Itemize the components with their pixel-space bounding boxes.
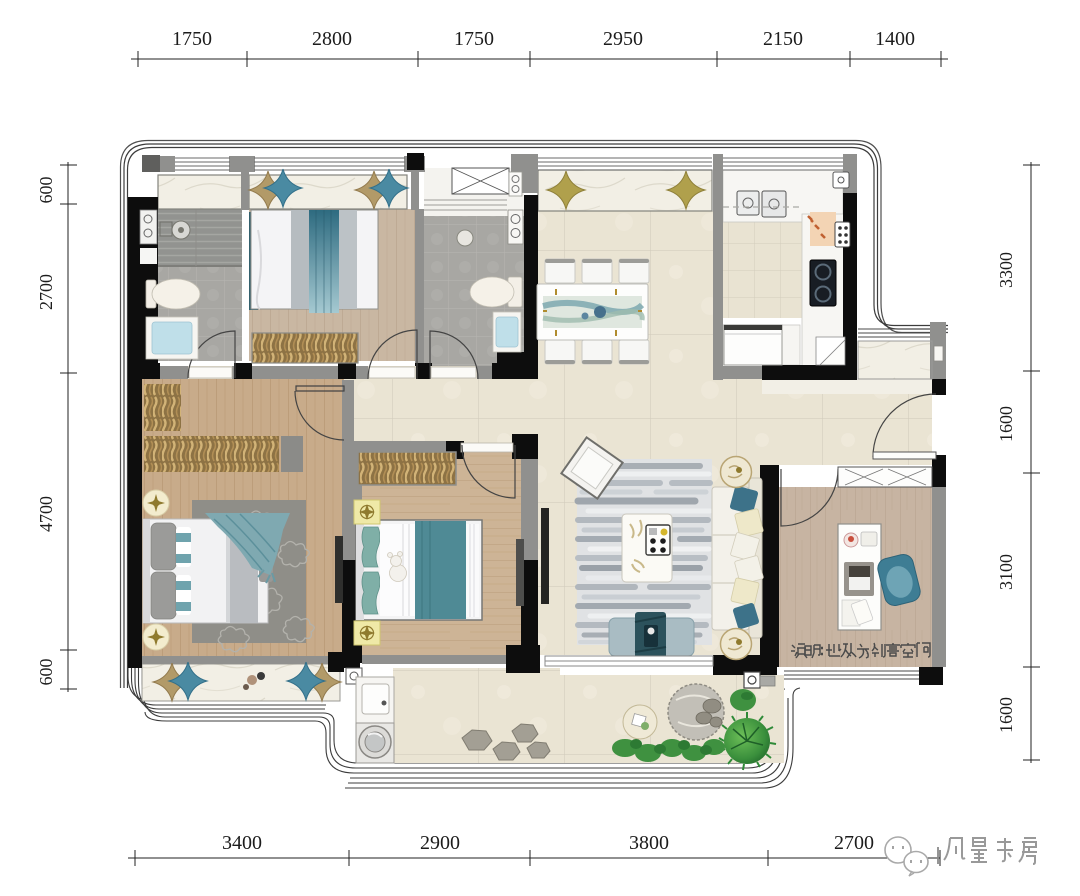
svg-text:1600: 1600 (996, 697, 1016, 733)
svg-text:4700: 4700 (36, 496, 56, 532)
svg-text:3400: 3400 (222, 832, 262, 854)
svg-text:2950: 2950 (603, 28, 643, 50)
svg-text:1750: 1750 (454, 28, 494, 50)
svg-text:1600: 1600 (996, 406, 1016, 442)
svg-text:3800: 3800 (629, 832, 669, 854)
svg-text:2150: 2150 (763, 28, 803, 50)
svg-text:600: 600 (36, 177, 56, 204)
svg-text:2700: 2700 (834, 832, 874, 854)
svg-text:3300: 3300 (996, 252, 1016, 288)
svg-text:2800: 2800 (312, 28, 352, 50)
svg-text:600: 600 (36, 659, 56, 686)
svg-text:2700: 2700 (36, 274, 56, 310)
svg-text:3100: 3100 (996, 554, 1016, 590)
svg-text:1750: 1750 (172, 28, 212, 50)
svg-text:2900: 2900 (420, 832, 460, 854)
svg-text:1400: 1400 (875, 28, 915, 50)
